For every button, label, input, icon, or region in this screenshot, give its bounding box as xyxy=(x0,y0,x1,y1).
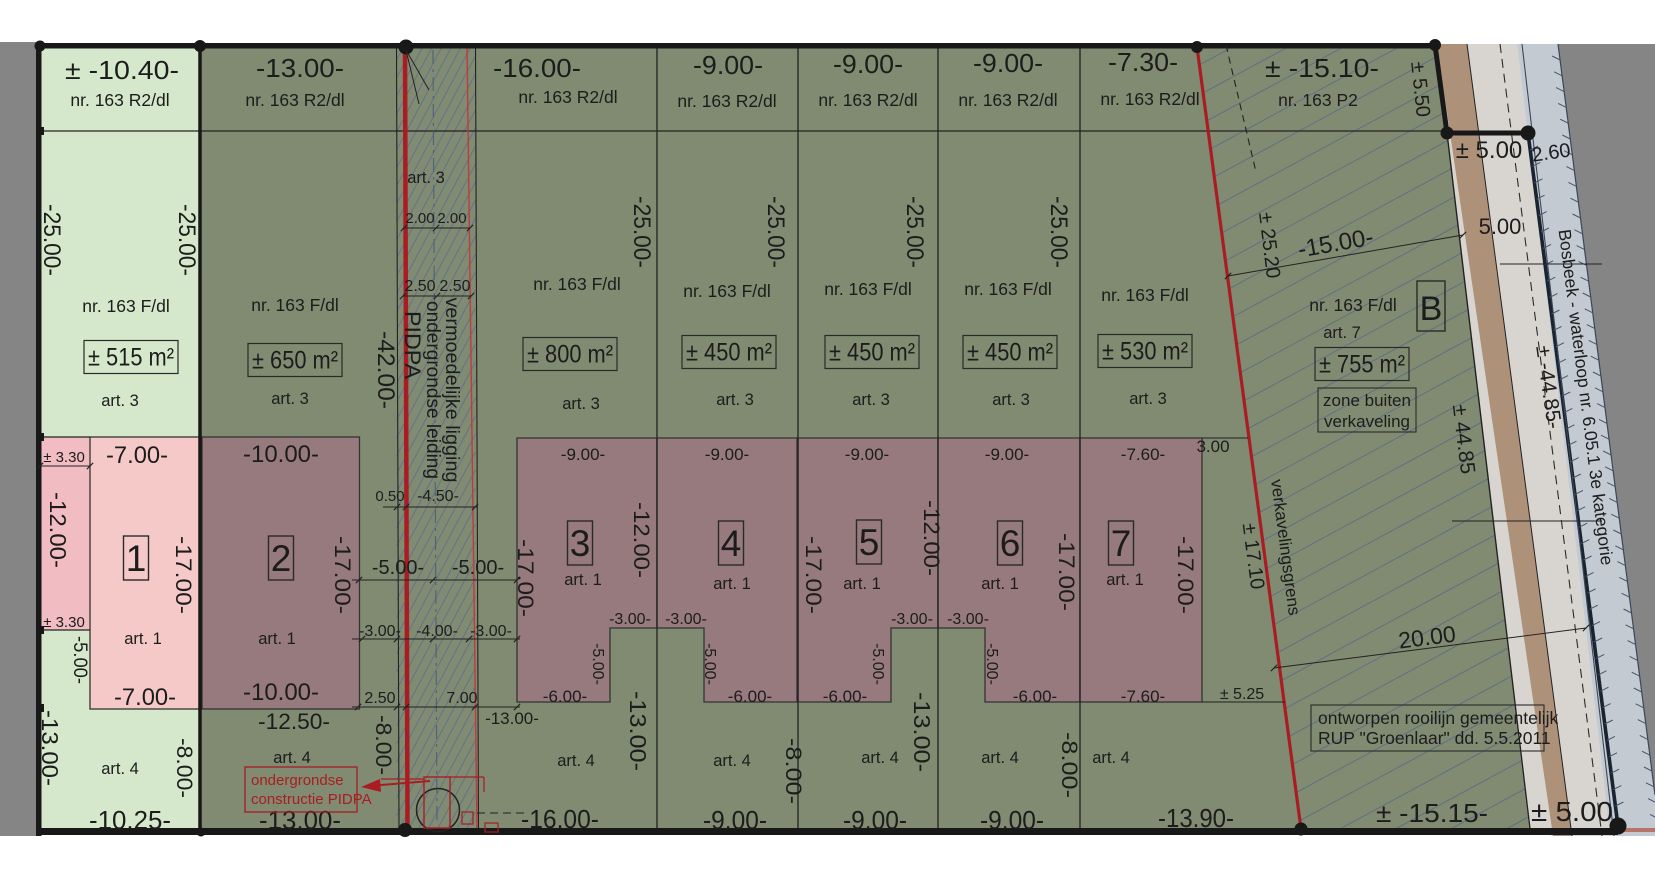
svg-text:± -10.40-: ± -10.40- xyxy=(65,55,179,85)
svg-text:nr. 163 R2/dl: nr. 163 R2/dl xyxy=(245,90,344,110)
svg-text:± 530 m²: ± 530 m² xyxy=(1102,338,1188,366)
svg-text:2.00: 2.00 xyxy=(405,210,434,227)
svg-text:ontworpen rooilijn gemeentelij: ontworpen rooilijn gemeentelijk xyxy=(1318,708,1559,728)
svg-text:-25.00-: -25.00- xyxy=(1045,196,1072,268)
svg-text:-6.00-: -6.00- xyxy=(823,687,867,706)
svg-text:-4.00-: -4.00- xyxy=(416,623,458,640)
svg-text:-12.00-: -12.00- xyxy=(629,502,654,578)
svg-text:-6.00-: -6.00- xyxy=(728,687,772,706)
svg-text:nr. 163 F/dl: nr. 163 F/dl xyxy=(683,281,771,301)
svg-text:verkaveling: verkaveling xyxy=(1324,412,1410,431)
svg-text:art. 3: art. 3 xyxy=(716,391,754,409)
svg-text:-5.00-: -5.00- xyxy=(701,643,718,685)
svg-text:art. 3: art. 3 xyxy=(852,391,890,409)
svg-text:6: 6 xyxy=(1000,523,1021,564)
svg-text:-17.00-: -17.00- xyxy=(171,536,196,614)
svg-text:-13.90-: -13.90- xyxy=(1158,803,1234,833)
svg-text:nr. 163 F/dl: nr. 163 F/dl xyxy=(964,279,1052,299)
svg-text:-9.00-: -9.00- xyxy=(985,445,1029,464)
svg-text:-3.00-: -3.00- xyxy=(665,611,707,628)
svg-text:ondergrondse: ondergrondse xyxy=(251,772,344,789)
svg-text:5: 5 xyxy=(859,522,880,563)
svg-text:4: 4 xyxy=(721,523,742,564)
svg-text:-25.00-: -25.00- xyxy=(901,196,928,268)
svg-text:-17.00-: -17.00- xyxy=(1054,533,1079,611)
svg-text:art. 4: art. 4 xyxy=(273,749,311,767)
svg-text:-5.00-: -5.00- xyxy=(983,643,1000,685)
svg-text:-13.00-: -13.00- xyxy=(485,709,539,728)
svg-text:± 5.25: ± 5.25 xyxy=(1220,686,1264,703)
svg-text:-8.00-: -8.00- xyxy=(172,738,197,798)
svg-text:art. 3: art. 3 xyxy=(407,169,445,187)
svg-text:± 450 m²: ± 450 m² xyxy=(829,339,915,367)
svg-text:-6.00-: -6.00- xyxy=(543,687,587,706)
svg-text:-17.00-: -17.00- xyxy=(801,536,826,614)
svg-text:2.50: 2.50 xyxy=(404,278,435,295)
svg-text:-25.00-: -25.00- xyxy=(628,196,655,268)
svg-text:2.50: 2.50 xyxy=(364,690,395,707)
svg-text:-7.60-: -7.60- xyxy=(1121,445,1165,464)
svg-text:RUP "Groenlaar" dd. 5.5.2011: RUP "Groenlaar" dd. 5.5.2011 xyxy=(1318,728,1551,748)
svg-text:constructie PIDPA: constructie PIDPA xyxy=(251,791,372,808)
svg-text:art. 1: art. 1 xyxy=(981,575,1019,593)
svg-text:-7.00-: -7.00- xyxy=(106,442,168,469)
svg-text:-9.00-: -9.00- xyxy=(705,445,749,464)
svg-text:± 515 m²: ± 515 m² xyxy=(88,344,174,372)
svg-text:-5.00-: -5.00- xyxy=(589,643,606,685)
svg-text:-9.00-: -9.00- xyxy=(845,445,889,464)
svg-text:-7.60-: -7.60- xyxy=(1121,687,1165,706)
svg-text:nr. 163 R2/dl: nr. 163 R2/dl xyxy=(818,90,917,110)
svg-text:nr. 163 F/dl: nr. 163 F/dl xyxy=(824,279,912,299)
svg-text:-17.00-: -17.00- xyxy=(1173,536,1198,614)
svg-text:-12.00-: -12.00- xyxy=(45,492,71,568)
svg-text:-42.00-: -42.00- xyxy=(372,331,399,409)
svg-text:5.00: 5.00 xyxy=(1479,214,1522,239)
svg-text:1: 1 xyxy=(126,538,147,579)
svg-text:7.00: 7.00 xyxy=(446,690,477,707)
svg-text:0.50: 0.50 xyxy=(375,488,404,505)
svg-text:-13.00-: -13.00- xyxy=(259,805,341,835)
svg-text:-9.00-: -9.00- xyxy=(973,48,1043,78)
svg-text:± 5.00: ± 5.00 xyxy=(1456,137,1523,164)
svg-text:± 450 m²: ± 450 m² xyxy=(686,339,772,367)
svg-text:± 450 m²: ± 450 m² xyxy=(967,339,1053,367)
svg-text:nr. 163 F/dl: nr. 163 F/dl xyxy=(1101,285,1189,305)
svg-text:-10.00-: -10.00- xyxy=(243,679,319,706)
svg-text:-9.00-: -9.00- xyxy=(980,805,1044,835)
svg-text:nr. 163 F/dl: nr. 163 F/dl xyxy=(82,296,170,316)
svg-text:nr. 163 F/dl: nr. 163 F/dl xyxy=(251,295,339,315)
svg-text:-9.00-: -9.00- xyxy=(703,805,767,835)
svg-text:7: 7 xyxy=(1111,523,1132,564)
svg-text:± 5.00: ± 5.00 xyxy=(1531,796,1613,827)
svg-text:-16.00-: -16.00- xyxy=(521,804,599,834)
svg-text:art. 3: art. 3 xyxy=(1129,390,1167,408)
svg-text:2.00: 2.00 xyxy=(437,210,466,227)
svg-text:art. 4: art. 4 xyxy=(713,752,751,770)
svg-text:-25.00-: -25.00- xyxy=(762,196,789,268)
svg-text:art. 1: art. 1 xyxy=(1106,571,1144,589)
svg-text:-3.00-: -3.00- xyxy=(609,611,651,628)
svg-text:nr. 163 F/dl: nr. 163 F/dl xyxy=(1309,295,1397,315)
svg-text:art. 1: art. 1 xyxy=(564,571,602,589)
svg-text:± 800 m²: ± 800 m² xyxy=(527,341,613,369)
svg-text:-12.50-: -12.50- xyxy=(258,709,330,734)
svg-text:± -15.10-: ± -15.10- xyxy=(1265,53,1379,83)
svg-text:vermoedelijke ligging: vermoedelijke ligging xyxy=(441,298,462,483)
svg-text:art. 3: art. 3 xyxy=(992,391,1030,409)
svg-text:-5.00-: -5.00- xyxy=(372,557,424,579)
svg-text:-9.00-: -9.00- xyxy=(693,50,763,80)
svg-text:-10.00-: -10.00- xyxy=(243,441,319,468)
svg-text:-25.00-: -25.00- xyxy=(173,204,200,276)
svg-text:art. 4: art. 4 xyxy=(101,760,139,778)
svg-text:± -15.15-: ± -15.15- xyxy=(1376,798,1488,828)
svg-text:-9.00-: -9.00- xyxy=(833,49,903,79)
svg-text:nr. 163 R2/dl: nr. 163 R2/dl xyxy=(958,90,1057,110)
svg-text:art. 4: art. 4 xyxy=(557,752,595,770)
svg-text:-6.00-: -6.00- xyxy=(1013,687,1057,706)
svg-text:-7.30-: -7.30- xyxy=(1108,47,1178,77)
svg-text:-4.50-: -4.50- xyxy=(417,488,459,505)
svg-text:nr. 163 R2/dl: nr. 163 R2/dl xyxy=(1100,89,1199,109)
svg-text:-12.00-: -12.00- xyxy=(919,500,944,576)
svg-text:art. 4: art. 4 xyxy=(1092,749,1130,767)
svg-text:-3.00-: -3.00- xyxy=(470,623,512,640)
svg-text:art. 3: art. 3 xyxy=(271,390,309,408)
svg-text:nr. 163 F/dl: nr. 163 F/dl xyxy=(533,274,621,294)
svg-text:-8.00-: -8.00- xyxy=(1057,732,1082,798)
svg-text:2.50: 2.50 xyxy=(439,278,470,295)
svg-text:art. 1: art. 1 xyxy=(713,575,751,593)
svg-text:art. 3: art. 3 xyxy=(562,395,600,413)
svg-text:-8.00-: -8.00- xyxy=(781,738,806,804)
svg-text:art. 4: art. 4 xyxy=(981,749,1019,767)
svg-text:± 650 m²: ± 650 m² xyxy=(252,347,338,375)
svg-text:2: 2 xyxy=(271,538,292,579)
svg-text:art. 1: art. 1 xyxy=(124,630,162,648)
svg-text:-13.00-: -13.00- xyxy=(256,53,344,83)
svg-text:-10.25-: -10.25- xyxy=(89,805,171,835)
svg-text:zone buiten: zone buiten xyxy=(1323,391,1411,410)
svg-text:-13.00-: -13.00- xyxy=(37,710,63,786)
svg-text:-9.00-: -9.00- xyxy=(561,445,605,464)
svg-text:-3.00-: -3.00- xyxy=(891,611,933,628)
svg-text:3: 3 xyxy=(570,523,591,564)
svg-text:3.00: 3.00 xyxy=(1196,437,1229,456)
svg-text:nr. 163 R2/dl: nr. 163 R2/dl xyxy=(518,87,617,107)
svg-text:-7.00-: -7.00- xyxy=(114,684,176,711)
svg-text:art. 3: art. 3 xyxy=(101,392,139,410)
svg-text:± 755 m²: ± 755 m² xyxy=(1319,351,1405,379)
svg-text:-8.00-: -8.00- xyxy=(371,715,396,775)
svg-text:-25.00-: -25.00- xyxy=(38,204,65,276)
svg-text:-3.00-: -3.00- xyxy=(359,623,401,640)
svg-text:-9.00-: -9.00- xyxy=(843,805,907,835)
svg-text:-5.00-: -5.00- xyxy=(69,636,90,684)
svg-text:art. 1: art. 1 xyxy=(843,575,881,593)
svg-text:-17.00-: -17.00- xyxy=(330,536,355,614)
svg-text:-13.00-: -13.00- xyxy=(625,691,651,771)
svg-text:B: B xyxy=(1420,290,1443,328)
svg-text:nr. 163 R2/dl: nr. 163 R2/dl xyxy=(677,91,776,111)
svg-text:-5.00-: -5.00- xyxy=(452,557,504,579)
svg-text:nr. 163 P2: nr. 163 P2 xyxy=(1278,90,1358,110)
svg-text:± 3.30: ± 3.30 xyxy=(43,449,85,466)
svg-text:nr. 163 R2/dl: nr. 163 R2/dl xyxy=(70,90,169,110)
svg-text:art. 1: art. 1 xyxy=(258,630,296,648)
svg-text:-3.00-: -3.00- xyxy=(947,611,989,628)
svg-text:-5.00-: -5.00- xyxy=(869,643,886,685)
svg-text:art. 7: art. 7 xyxy=(1323,324,1361,342)
svg-text:PIDPA: PIDPA xyxy=(400,311,425,379)
svg-text:-16.00-: -16.00- xyxy=(493,53,581,83)
svg-text:-17.00-: -17.00- xyxy=(513,539,538,617)
svg-text:art. 4: art. 4 xyxy=(861,749,899,767)
svg-text:± 3.30: ± 3.30 xyxy=(43,614,85,631)
svg-text:-13.00-: -13.00- xyxy=(909,692,935,772)
